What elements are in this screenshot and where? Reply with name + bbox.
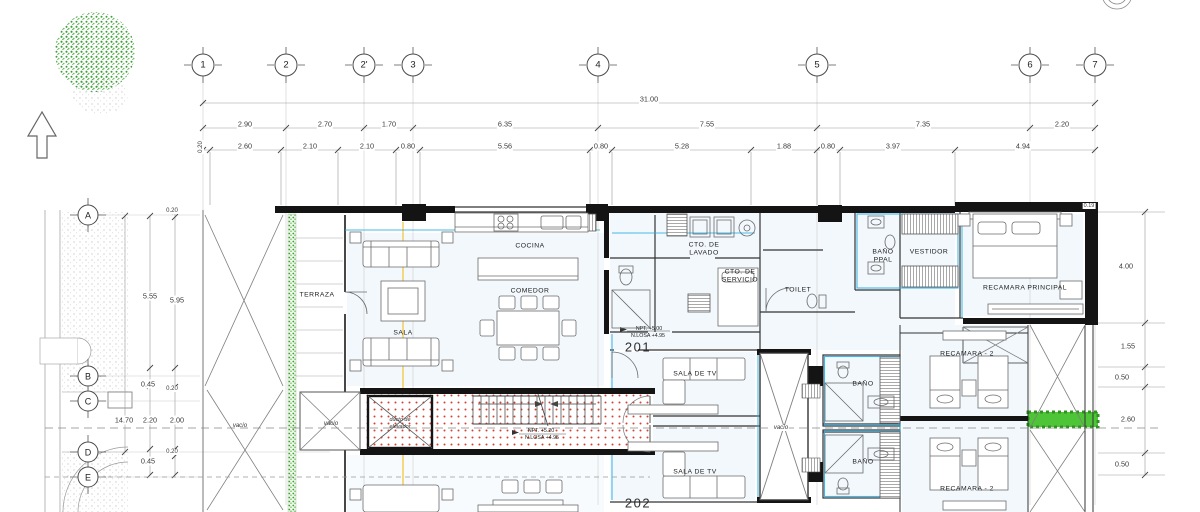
dim-left: 0.45: [140, 380, 156, 389]
grid-label: 7: [1092, 60, 1097, 71]
room-label-recamara2-lower: RECAMARA - 2: [940, 486, 994, 493]
grid-bubble-col-2: 2: [275, 54, 298, 77]
dim-detail: 5.28: [674, 142, 690, 151]
dim-left: 2.00: [169, 416, 185, 425]
dim-detail: 4.94: [1015, 142, 1031, 151]
room-label-sala-tv-lower: SALA DE TV: [673, 469, 717, 476]
grid-label: 4: [595, 60, 600, 71]
grid-bubble-col-1: 1: [192, 54, 215, 77]
room-label-bano-upper: BAÑO: [852, 381, 873, 388]
dim-left: 0.20: [165, 449, 179, 455]
dim-left: 0.20: [165, 386, 179, 392]
dim-spacing: 2.90: [237, 120, 253, 129]
dim-left: 5.95: [169, 296, 185, 305]
grid-label: C: [85, 396, 92, 406]
grid-label: 1: [200, 60, 205, 71]
dim-left: 5.55: [142, 292, 158, 301]
room-label-cocina: COCINA: [515, 243, 544, 250]
room-label-bano-lower: BAÑO: [852, 459, 873, 466]
dim-detail: 2.10: [359, 142, 375, 151]
tree-symbol: [55, 12, 135, 114]
grid-label: A: [85, 210, 91, 220]
grid-bubble-col-6: 6: [1019, 54, 1042, 77]
room-label-sala-tv-upper: SALA DE TV: [673, 371, 717, 378]
dim-right: 1.55: [1120, 342, 1136, 351]
dim-detail: 0.80: [593, 142, 609, 151]
room-label-sala: SALA: [393, 330, 412, 337]
dim-detail: 0.80: [820, 142, 836, 151]
dim-left: 14.70: [114, 416, 134, 425]
dim-detail: 5.56: [497, 142, 513, 151]
grid-bubble-row-a: A: [78, 205, 99, 226]
room-label-toilet: TOILET: [785, 287, 812, 294]
grid-label: 6: [1027, 60, 1032, 71]
dim-spacing: 2.70: [317, 120, 333, 129]
grid-bubble-row-b: B: [78, 366, 99, 387]
label-ducto-elevador: ducto de elevador: [382, 417, 418, 431]
label-vacio-shaft: vacío: [773, 425, 789, 431]
level-losa-stair: N.LOSA +4.95: [525, 435, 559, 441]
room-label-vestidor: VESTIDOR: [910, 249, 949, 256]
dim-detail: 2.10: [302, 142, 318, 151]
grid-bubble-col-7: 7: [1084, 54, 1107, 77]
label-vacio-yard: vacío: [233, 423, 247, 429]
level-npt-unit: NPT. +5.00: [636, 326, 662, 332]
level-losa-unit: N.LOSA +4.95: [631, 333, 665, 339]
floorplan-sheet: 1 2 2' 3 4 5 6 7 A B C D E 31.00 2.90 2.…: [0, 0, 1200, 512]
room-label-terraza: TERRAZA: [299, 292, 334, 299]
dim-overall: 31.00: [639, 95, 659, 104]
grid-label: 2': [360, 60, 367, 71]
grid-label: E: [85, 472, 91, 482]
dim-detail: 2.60: [237, 142, 253, 151]
dim-spacing: 2.20: [1054, 120, 1070, 129]
unit-number-202: 202: [625, 496, 651, 511]
grid-bubble-row-c: C: [78, 391, 99, 412]
dim-spacing: 7.55: [699, 120, 715, 129]
room-label-comedor: COMEDOR: [511, 288, 550, 295]
room-label-recamara2-upper: RECAMARA - 2: [940, 351, 994, 358]
room-label-cto-lavado: CTO. DE LAVADO: [681, 242, 727, 259]
room-label-bano-ppal: BAÑO PPAL: [867, 249, 899, 266]
north-arrow-icon: [28, 112, 56, 158]
dim-right: 0.50: [1114, 373, 1130, 382]
grid-label: B: [85, 371, 91, 381]
grid-label: 3: [410, 60, 415, 71]
dim-detail: 3.97: [885, 142, 901, 151]
dim-left: 0.20: [165, 208, 179, 214]
dim-right: 0.19: [1083, 203, 1096, 209]
grid-bubble-col-5: 5: [806, 54, 829, 77]
dim-spacing: 1.70: [381, 120, 397, 129]
dim-detail: 1.88: [776, 142, 792, 151]
grid-bubble-row-e: E: [78, 467, 99, 488]
label-vacio-mid: vacío: [324, 421, 338, 427]
dim-right: 2.60: [1120, 415, 1136, 424]
dim-detail: 0.80: [400, 142, 416, 151]
unit-number-201: 201: [625, 340, 651, 355]
dim-left: 2.20: [142, 416, 158, 425]
level-npt-stair: NPT. +5.20: [528, 428, 554, 434]
dim-detail: 0.20: [198, 140, 204, 154]
dim-right: 4.00: [1118, 262, 1134, 271]
dim-spacing: 6.35: [497, 120, 513, 129]
room-label-recamara-principal: RECAMARA PRINCIPAL: [983, 285, 1067, 292]
grid-bubble-row-d: D: [78, 442, 99, 463]
terraza-and-yard: [203, 210, 343, 512]
grid-label: 2: [283, 60, 288, 71]
dim-left: 0.45: [140, 457, 156, 466]
grid-label: 5: [814, 60, 819, 71]
floorplan-drawing: [0, 0, 1200, 512]
grid-label: D: [85, 447, 92, 457]
room-label-cto-servicio: CTO. DE SERVICIO: [715, 269, 765, 286]
grid-bubble-col-3: 3: [402, 54, 425, 77]
clipped-detail-bubble: [1102, 0, 1132, 9]
grid-bubble-col-2p: 2': [353, 54, 376, 77]
dim-right: 0.50: [1114, 460, 1130, 469]
grid-bubble-col-4: 4: [587, 54, 610, 77]
dim-spacing: 7.35: [915, 120, 931, 129]
